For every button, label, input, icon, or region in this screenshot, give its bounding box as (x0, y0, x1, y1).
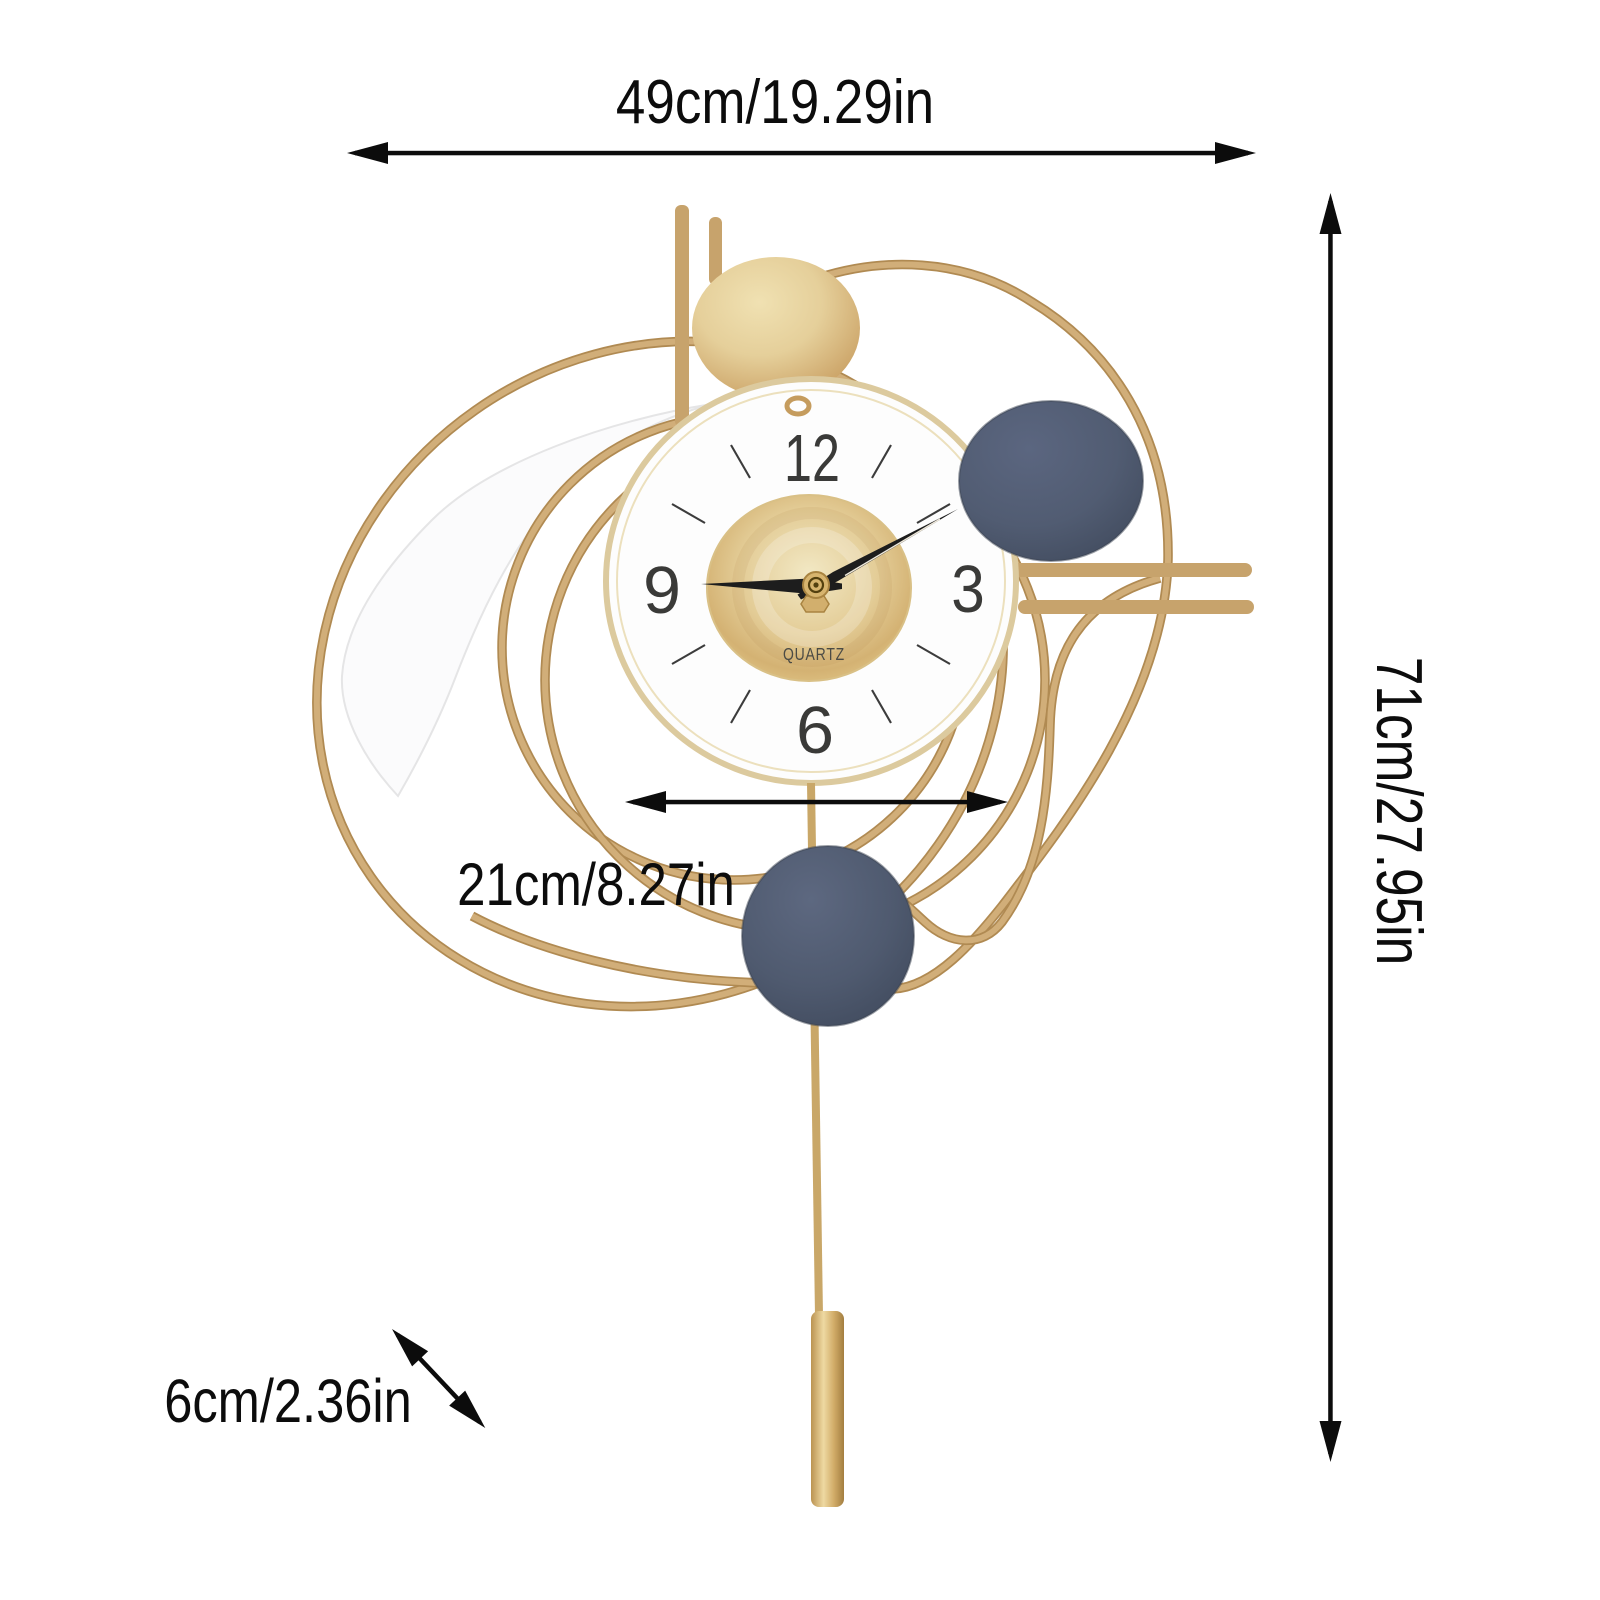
svg-text:21cm/8.27in: 21cm/8.27in (457, 851, 735, 918)
svg-text:49cm/19.29in: 49cm/19.29in (616, 68, 934, 137)
svg-text:QUARTZ: QUARTZ (783, 646, 845, 665)
svg-text:3: 3 (951, 551, 985, 627)
svg-text:9: 9 (643, 554, 681, 628)
svg-text:71cm/27.95in: 71cm/27.95in (1363, 657, 1435, 965)
svg-text:6: 6 (796, 694, 834, 768)
svg-text:12: 12 (784, 420, 840, 496)
svg-text:6cm/2.36in: 6cm/2.36in (164, 1367, 412, 1436)
